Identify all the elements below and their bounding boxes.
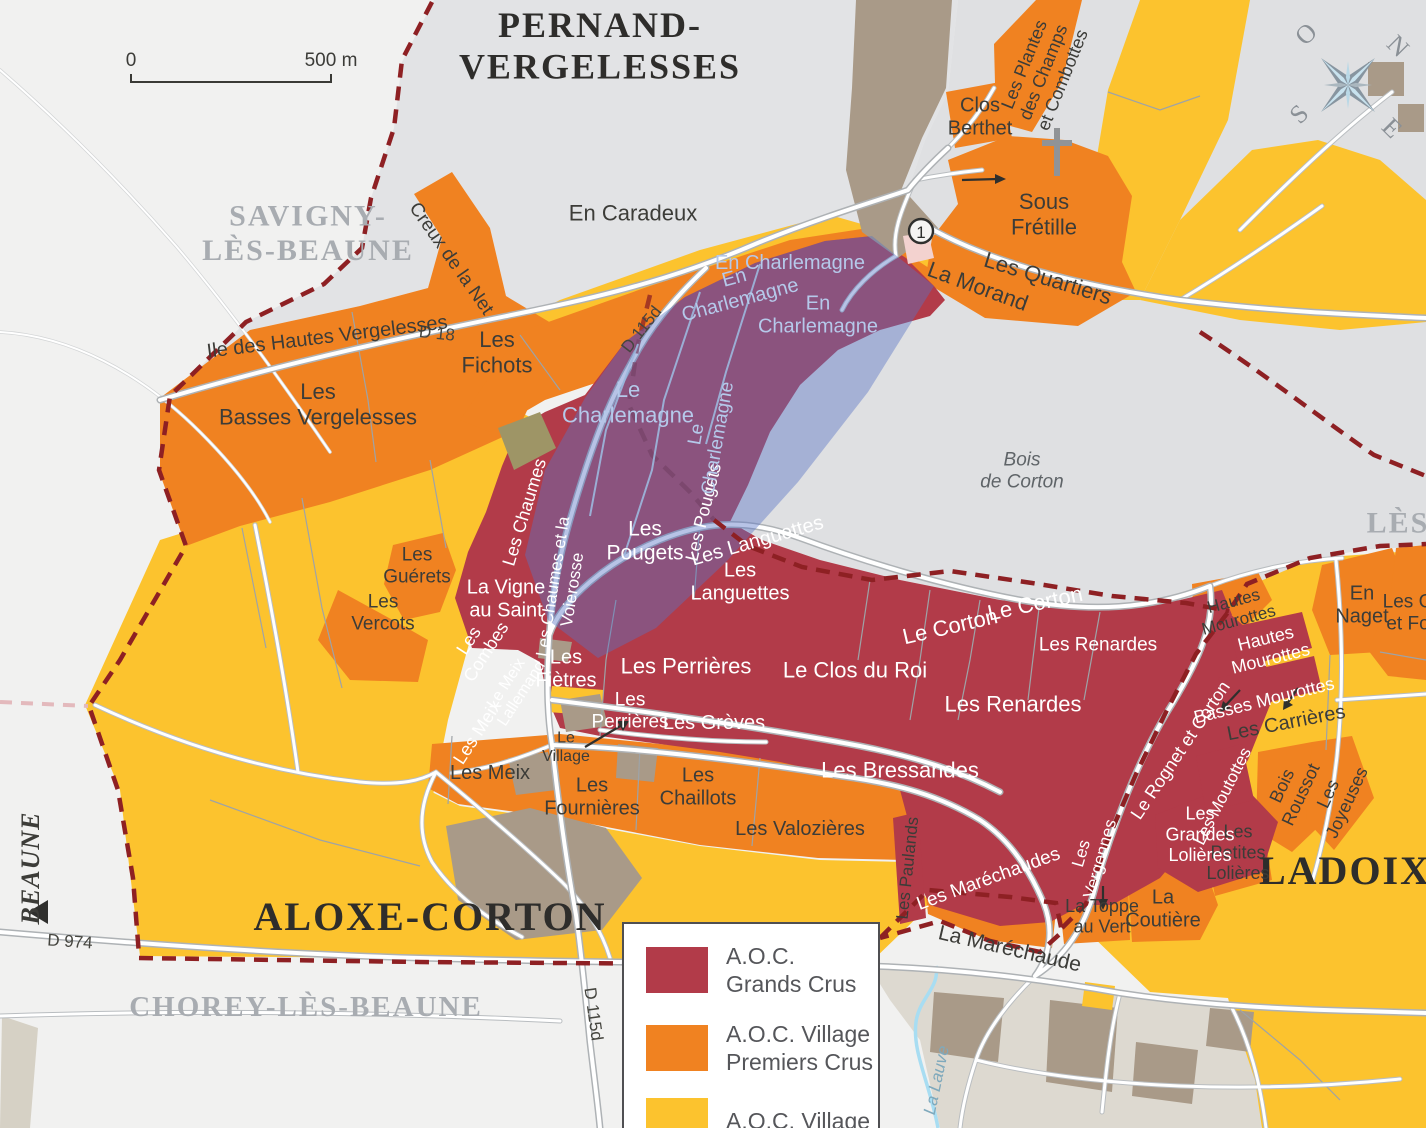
legend-label: A.O.C. Village xyxy=(726,1107,870,1128)
poi-marker-1: 1 xyxy=(909,219,933,243)
legend-items: A.O.C. Grands CrusA.O.C. Village Premier… xyxy=(646,942,878,1128)
legend-item: A.O.C. Village xyxy=(646,1098,878,1128)
legend: A.O.C. Grands CrusA.O.C. Village Premier… xyxy=(622,922,880,1128)
wine-map-corton: 0 500 m N E S O 1 PERNAND-VE xyxy=(0,0,1426,1128)
cru-les-renardes-2: Les Renardes xyxy=(945,692,1082,717)
town-savigny: SAVIGNY-LÈS-BEAUNE xyxy=(202,199,414,267)
legend-swatch xyxy=(646,947,708,993)
legend-label: A.O.C. Village Premiers Crus xyxy=(726,1020,873,1076)
town-pernand-vergelesses: PERNAND-VERGELESSES xyxy=(459,5,741,86)
legend-swatch xyxy=(646,1098,708,1128)
region-ladoix-building-3 xyxy=(1132,1042,1198,1104)
scale-label: 500 m xyxy=(305,50,358,71)
lieu-en-caradeux: En Caradeux xyxy=(569,201,697,226)
lieu-sous-fretille: SousFrétille xyxy=(1011,189,1077,239)
lieu-la-toppe-au-vert: La Toppeau Vert xyxy=(1065,896,1139,937)
cru-les-renardes-1: Les Renardes xyxy=(1039,635,1157,656)
town-ladoix: LADOIX xyxy=(1259,848,1426,893)
lieu-les-g-et-fo: Les Get Fo xyxy=(1383,592,1426,635)
legend-swatch xyxy=(646,1025,708,1071)
cru-les-perrieres: Les Perrières xyxy=(621,654,752,679)
legend-item: A.O.C. Village Premiers Crus xyxy=(646,1020,878,1076)
town-aloxe-corton: ALOXE-CORTON xyxy=(253,894,606,939)
lieu-les-valozieres: Les Valozières xyxy=(735,818,865,840)
town-chorey: CHOREY-LÈS-BEAUNE xyxy=(129,990,483,1023)
poi-marker-number: 1 xyxy=(916,223,925,242)
scale-zero: 0 xyxy=(126,50,137,71)
legend-label: A.O.C. Grands Crus xyxy=(726,942,856,998)
town-les-partial: LÈS xyxy=(1367,507,1426,540)
legend-item: A.O.C. Grands Crus xyxy=(646,942,878,998)
road-d974: D 974 xyxy=(47,930,94,952)
direction-beaune: BEAUNE xyxy=(16,812,45,926)
building xyxy=(1368,62,1404,96)
cru-les-greves: Les Grèves xyxy=(663,712,765,734)
cru-le-clos-du-roi: Le Clos du Roi xyxy=(783,658,927,683)
cru-la-vigne-au-saint: La Vigneau Saint xyxy=(467,577,546,622)
cru-les-bressandes: Les Bressandes xyxy=(821,758,979,783)
